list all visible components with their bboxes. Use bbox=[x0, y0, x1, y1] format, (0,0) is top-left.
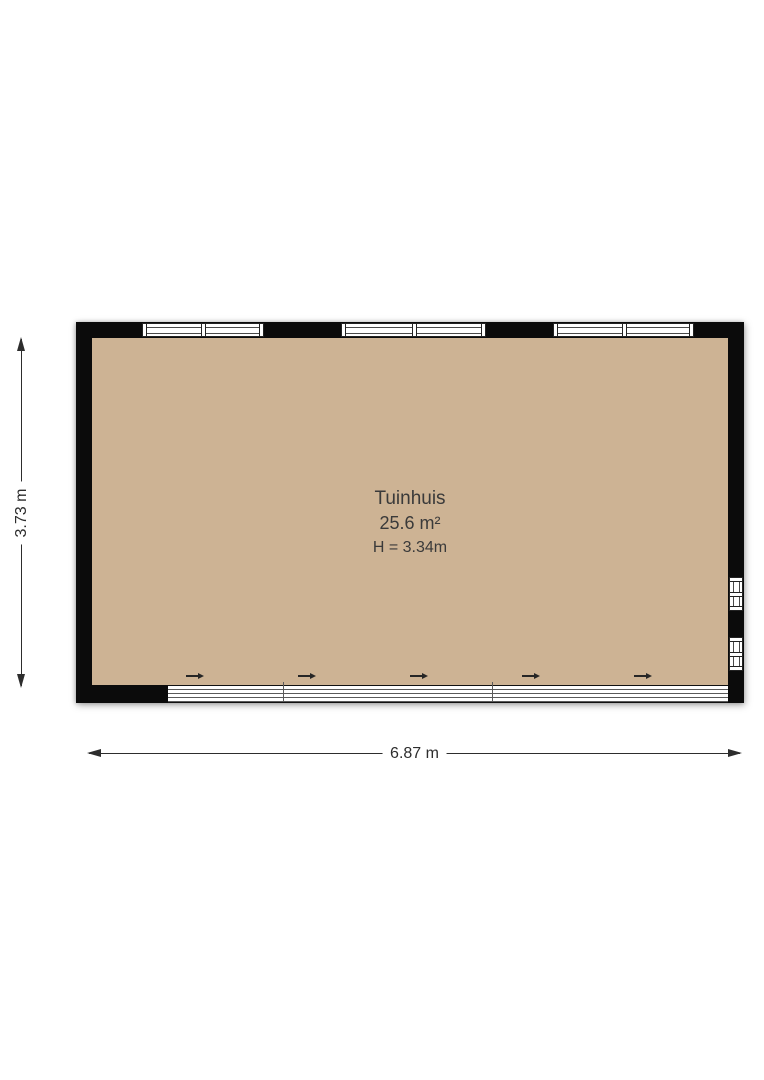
door-panel-divider bbox=[283, 682, 284, 702]
window-frame-tick bbox=[481, 323, 486, 337]
window-right-1 bbox=[729, 577, 743, 611]
room-name: Tuinhuis bbox=[310, 486, 510, 511]
window-frame-tick bbox=[729, 637, 743, 642]
window-frame-tick bbox=[142, 323, 147, 337]
window-frame-tick bbox=[729, 592, 743, 597]
room-label: Tuinhuis 25.6 m² H = 3.34m bbox=[310, 486, 510, 560]
window-frame-tick bbox=[341, 323, 346, 337]
slide-direction-arrow-icon bbox=[634, 675, 646, 677]
window-frame-tick bbox=[412, 323, 417, 337]
window-right-2 bbox=[729, 637, 743, 671]
slide-direction-arrow-icon bbox=[186, 675, 198, 677]
slide-direction-arrow-icon bbox=[298, 675, 310, 677]
window-frame-tick bbox=[553, 323, 558, 337]
dimension-height: 3.73 m bbox=[14, 337, 30, 688]
dimension-height-label: 3.73 m bbox=[13, 481, 31, 544]
window-top-2 bbox=[341, 323, 486, 337]
building-outline: Tuinhuis 25.6 m² H = 3.34m bbox=[76, 322, 744, 703]
floorplan: Tuinhuis 25.6 m² H = 3.34m 3.73 m 6.87 m bbox=[0, 0, 764, 1080]
slide-direction-arrow-icon bbox=[522, 675, 534, 677]
arrowhead-left-icon bbox=[87, 749, 101, 757]
window-frame-tick bbox=[201, 323, 206, 337]
arrowhead-up-icon bbox=[17, 337, 25, 351]
dimension-width: 6.87 m bbox=[87, 746, 742, 762]
dimension-width-label: 6.87 m bbox=[382, 745, 447, 763]
window-frame-tick bbox=[729, 606, 743, 611]
sliding-door bbox=[168, 685, 728, 703]
window-frame-tick bbox=[729, 652, 743, 657]
window-frame-tick bbox=[729, 666, 743, 671]
window-frame-tick bbox=[729, 577, 743, 582]
window-top-3 bbox=[553, 323, 694, 337]
arrowhead-down-icon bbox=[17, 674, 25, 688]
window-frame-tick bbox=[622, 323, 627, 337]
door-panel-divider bbox=[492, 682, 493, 702]
window-top-1 bbox=[142, 323, 264, 337]
arrowhead-right-icon bbox=[728, 749, 742, 757]
window-frame-tick bbox=[689, 323, 694, 337]
slide-direction-arrow-icon bbox=[410, 675, 422, 677]
window-frame-tick bbox=[259, 323, 264, 337]
room-area: 25.6 m² bbox=[310, 511, 510, 536]
room-ceiling-height: H = 3.34m bbox=[310, 536, 510, 560]
